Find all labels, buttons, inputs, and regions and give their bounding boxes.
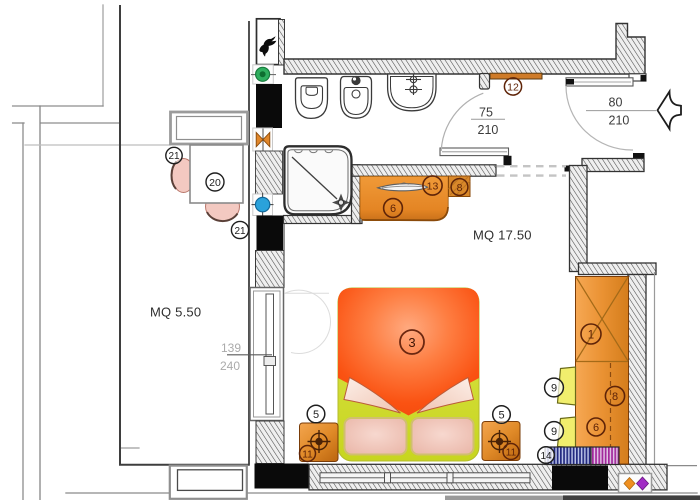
svg-text:11: 11 (302, 449, 313, 460)
svg-text:8: 8 (612, 391, 618, 403)
svg-text:MQ 5.50: MQ 5.50 (150, 305, 201, 320)
svg-text:11: 11 (506, 447, 517, 458)
svg-text:9: 9 (551, 426, 557, 438)
svg-text:210: 210 (609, 114, 630, 128)
svg-text:14: 14 (540, 451, 552, 462)
svg-text:12: 12 (507, 81, 519, 93)
svg-text:9: 9 (551, 383, 557, 395)
svg-text:139: 139 (221, 341, 241, 355)
svg-text:210: 210 (478, 123, 499, 137)
svg-text:21: 21 (168, 151, 180, 162)
svg-text:8: 8 (457, 182, 463, 194)
svg-text:1: 1 (588, 329, 594, 341)
svg-text:6: 6 (390, 203, 396, 215)
svg-text:240: 240 (220, 359, 240, 373)
svg-text:5: 5 (313, 409, 319, 421)
svg-text:5: 5 (498, 410, 504, 422)
svg-text:21: 21 (234, 226, 246, 237)
svg-text:80: 80 (609, 96, 623, 110)
svg-text:6: 6 (593, 422, 599, 434)
svg-text:75: 75 (479, 106, 493, 120)
svg-text:20: 20 (209, 177, 221, 189)
svg-text:MQ 17.50: MQ 17.50 (473, 228, 532, 243)
svg-text:13: 13 (427, 181, 439, 193)
svg-text:3: 3 (408, 335, 415, 350)
